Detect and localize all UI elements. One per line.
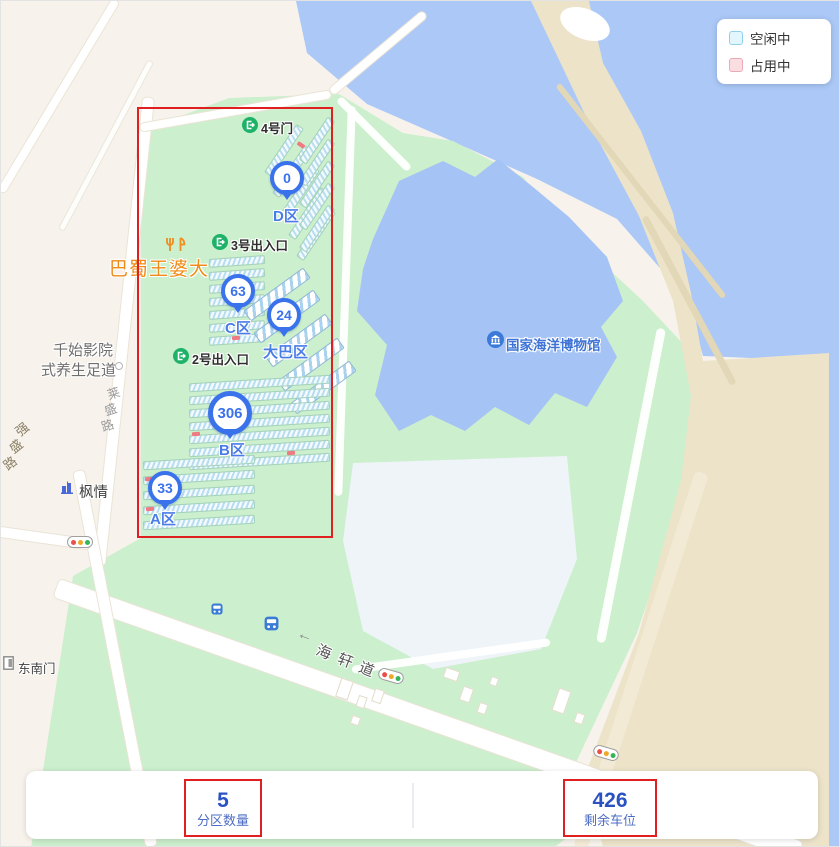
zone-count: 306 bbox=[217, 405, 242, 422]
gate-marker-4[interactable]: 4号门 bbox=[242, 117, 293, 138]
stats-divider bbox=[412, 783, 414, 828]
occupied-stall-mark bbox=[287, 451, 295, 456]
zone-label-bus[interactable]: 大巴区 bbox=[263, 341, 308, 362]
parking-map-app: 0 D区 63 C区 24 大巴区 306 B区 33 A区 4号门 3号出入口… bbox=[0, 0, 840, 847]
legend-free-label: 空闲中 bbox=[750, 28, 791, 48]
poi-museum-label[interactable]: 国家海洋博物馆 bbox=[506, 334, 601, 354]
zone-count: 24 bbox=[276, 307, 292, 323]
poi-spa-line2: 式养生足道 bbox=[41, 359, 116, 380]
zone-label-B[interactable]: B区 bbox=[219, 439, 245, 460]
museum-icon bbox=[487, 331, 504, 353]
zone-pin-B[interactable]: 306 bbox=[208, 391, 252, 435]
gate-exit-icon bbox=[173, 348, 189, 369]
poi-spa-line1: 千始影院 bbox=[53, 339, 113, 360]
gate-label: 2号出入口 bbox=[192, 349, 249, 368]
zone-count: 63 bbox=[230, 283, 246, 299]
zone-count-label: 分区数量 bbox=[197, 814, 249, 827]
occupied-stall-mark bbox=[192, 432, 200, 437]
bus-stop-icon bbox=[211, 602, 223, 620]
zone-label-A[interactable]: A区 bbox=[150, 508, 176, 529]
gate-exit-icon bbox=[242, 117, 258, 138]
stat-zone-count: 5 分区数量 bbox=[184, 779, 262, 837]
gate-exit-icon bbox=[212, 234, 228, 255]
remaining-spaces-label: 剩余车位 bbox=[584, 814, 636, 827]
zone-pin-A[interactable]: 33 bbox=[148, 471, 182, 505]
legend-occupied-label: 占用中 bbox=[750, 55, 791, 75]
stats-card: 5 分区数量 426 剩余车位 bbox=[26, 771, 818, 839]
poi-dot bbox=[115, 362, 123, 370]
zone-label-C[interactable]: C区 bbox=[225, 317, 251, 338]
legend: 空闲中 占用中 bbox=[717, 19, 831, 84]
gate-label: 4号门 bbox=[261, 118, 293, 137]
gate-marker-2[interactable]: 2号出入口 bbox=[173, 348, 249, 369]
zone-pin-D[interactable]: 0 bbox=[270, 161, 304, 195]
door-icon bbox=[3, 656, 14, 675]
zone-label-D[interactable]: D区 bbox=[273, 205, 299, 226]
legend-occupied-swatch bbox=[729, 58, 743, 72]
building-icon bbox=[61, 481, 74, 499]
poi-restaurant-label[interactable]: 巴蜀王婆大 bbox=[109, 254, 209, 281]
poi-southeast-gate-label: 东南门 bbox=[18, 658, 56, 677]
bus-stop-icon bbox=[264, 616, 279, 636]
legend-row-occupied: 占用中 bbox=[729, 55, 819, 75]
stat-remaining-spaces: 426 剩余车位 bbox=[563, 779, 657, 837]
zone-count: 0 bbox=[283, 170, 291, 186]
gate-label: 3号出入口 bbox=[231, 235, 288, 254]
zone-pin-C[interactable]: 63 bbox=[221, 274, 255, 308]
remaining-spaces-value: 426 bbox=[592, 790, 627, 811]
zone-count-value: 5 bbox=[217, 790, 229, 811]
legend-row-free: 空闲中 bbox=[729, 28, 819, 48]
poi-fengqing-label: 枫情 bbox=[79, 481, 108, 502]
legend-free-swatch bbox=[729, 31, 743, 45]
traffic-light-icon bbox=[67, 536, 93, 548]
zone-count: 33 bbox=[157, 480, 173, 496]
zone-pin-bus[interactable]: 24 bbox=[267, 298, 301, 332]
gate-marker-3[interactable]: 3号出入口 bbox=[212, 234, 288, 255]
